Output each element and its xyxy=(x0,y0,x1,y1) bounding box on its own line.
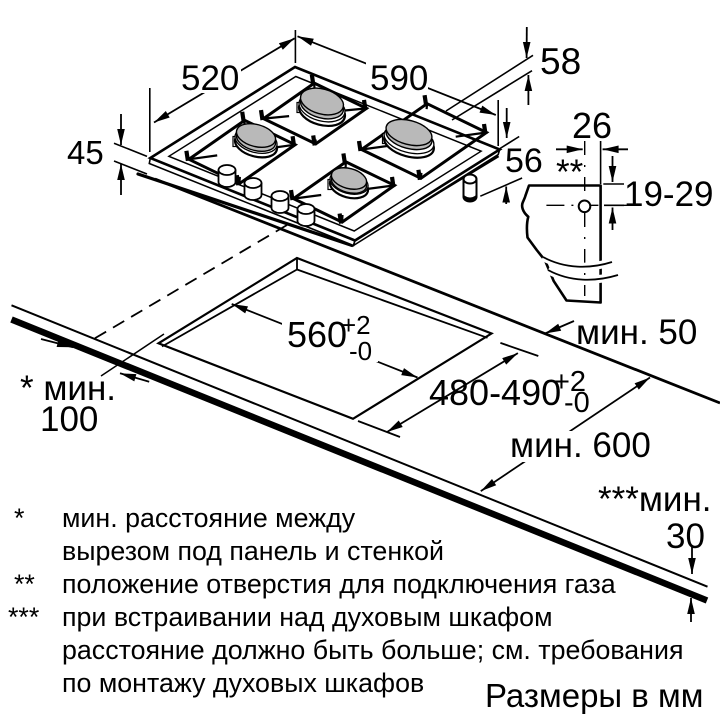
svg-text:**: ** xyxy=(556,153,584,192)
svg-text:по монтажу духовых шкафов: по монтажу духовых шкафов xyxy=(62,668,424,698)
svg-text:58: 58 xyxy=(540,41,581,82)
svg-text:вырезом под панель и стенкой: вырезом под панель и стенкой xyxy=(62,536,444,566)
svg-text:положение отверстия для подклю: положение отверстия для подключения газа xyxy=(62,569,616,599)
svg-text:100: 100 xyxy=(40,400,98,439)
svg-text:мин. расстояние между: мин. расстояние между xyxy=(62,503,356,533)
svg-text:-0: -0 xyxy=(564,387,590,419)
svg-text:30: 30 xyxy=(666,517,705,556)
svg-text:мин. 600: мин. 600 xyxy=(510,426,651,465)
svg-text:расстояние должно быть больше;: расстояние должно быть больше; см. требо… xyxy=(62,635,683,665)
svg-text:Размеры в мм: Размеры в мм xyxy=(485,677,703,714)
svg-text:520: 520 xyxy=(181,59,239,98)
svg-text:***мин.: ***мин. xyxy=(598,480,712,519)
svg-text:**: ** xyxy=(14,569,35,599)
svg-text:мин. 50: мин. 50 xyxy=(576,313,697,352)
svg-text:56: 56 xyxy=(505,142,543,180)
svg-text:19-29: 19-29 xyxy=(624,175,714,214)
svg-text:при встраивании над духовым шк: при встраивании над духовым шкафом xyxy=(62,602,553,632)
svg-text:480-490: 480-490 xyxy=(429,372,561,413)
svg-text:*: * xyxy=(14,503,25,533)
svg-text:560: 560 xyxy=(287,314,347,355)
svg-text:590: 590 xyxy=(370,59,428,98)
svg-text:***: *** xyxy=(8,602,40,632)
svg-text:-0: -0 xyxy=(349,336,372,366)
svg-text:45: 45 xyxy=(67,134,104,171)
svg-text:26: 26 xyxy=(572,105,612,146)
